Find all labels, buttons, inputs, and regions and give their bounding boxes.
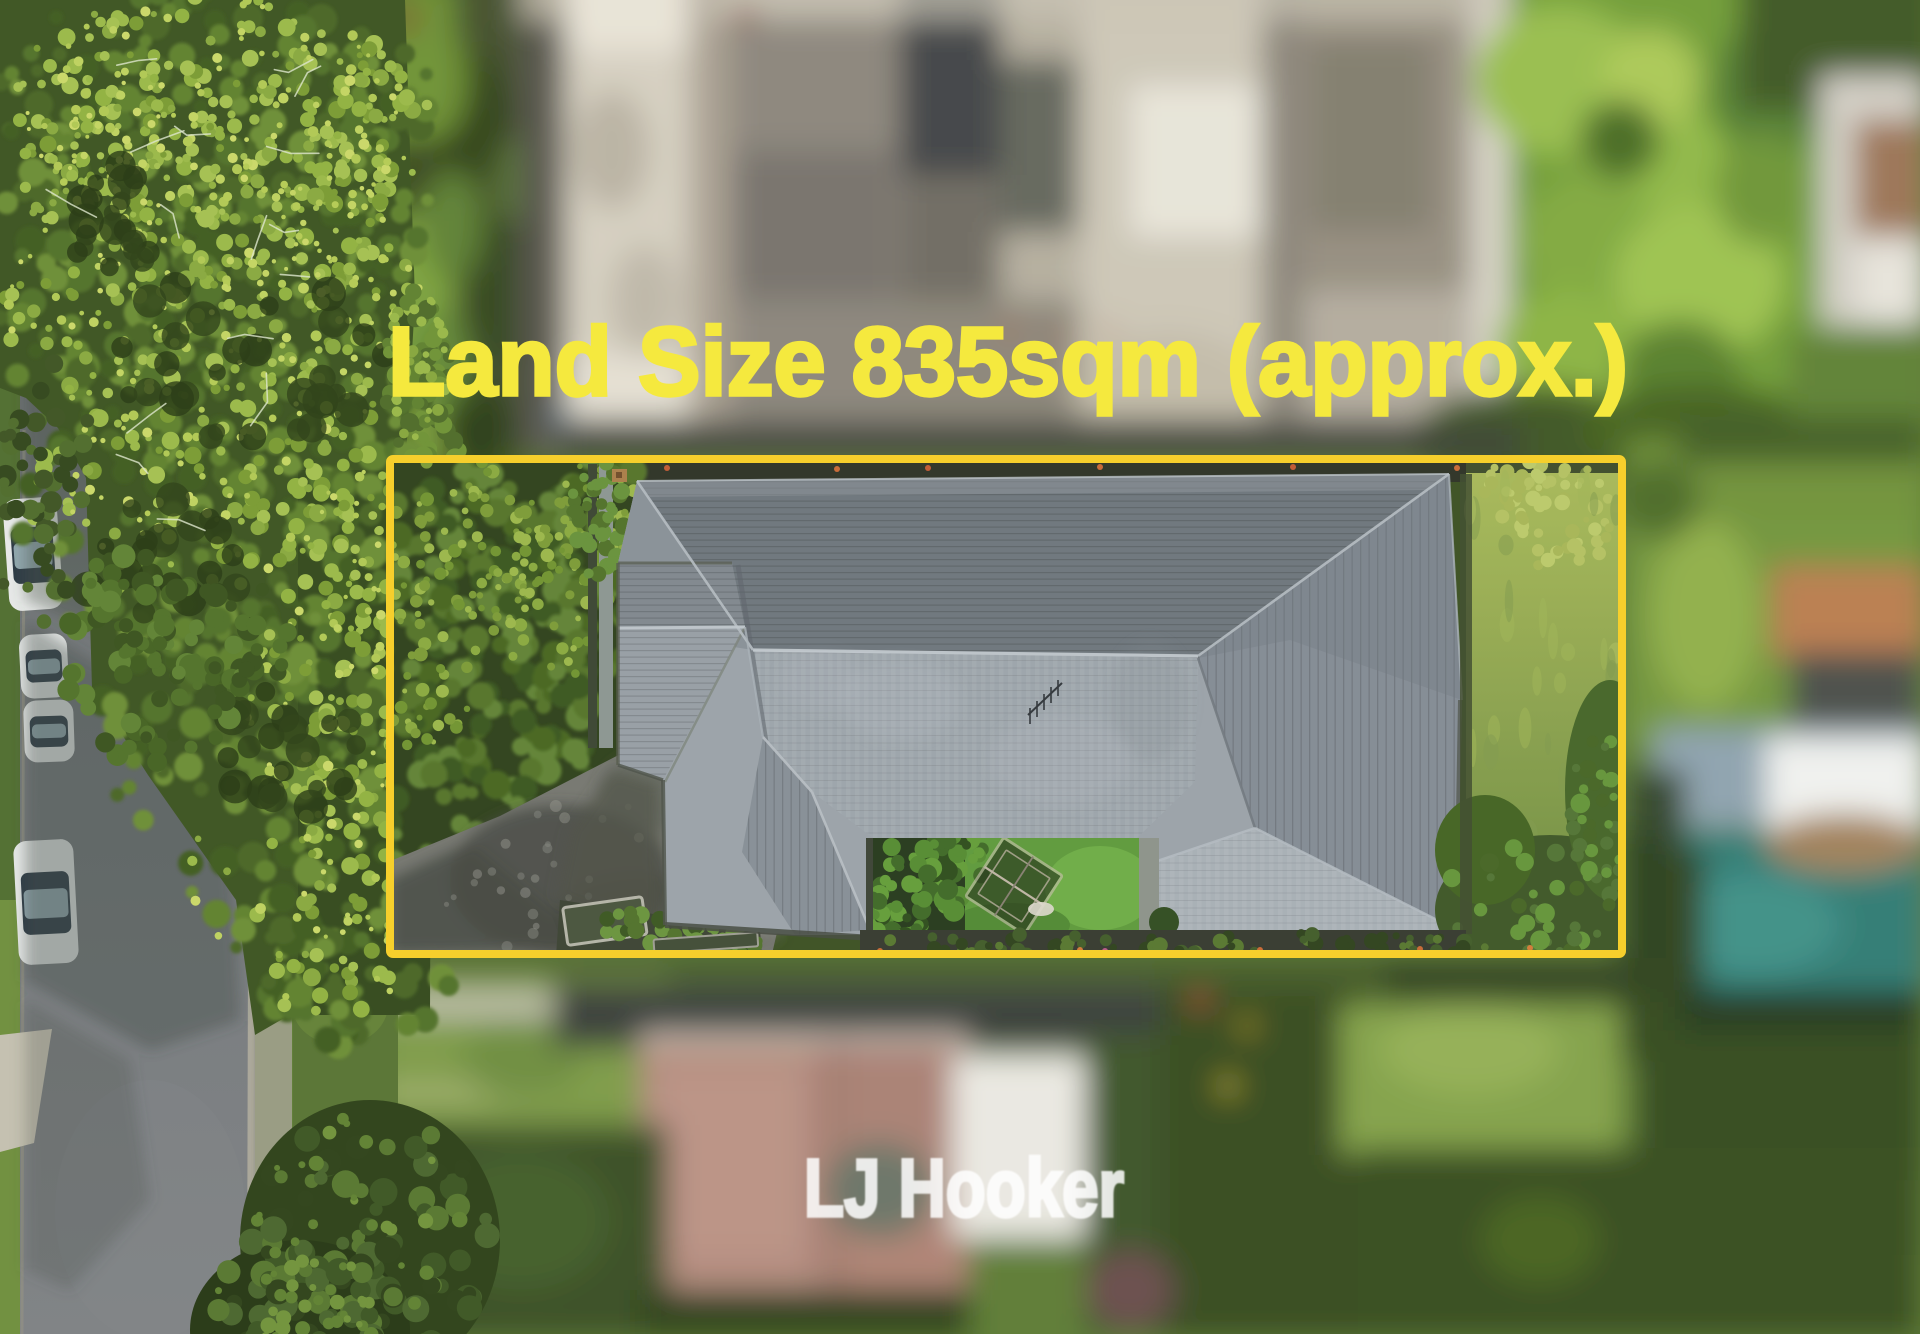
svg-text:LJ Hooker: LJ Hooker: [804, 1143, 1124, 1234]
svg-text:Land Size 835sqm (approx.): Land Size 835sqm (approx.): [388, 307, 1628, 416]
